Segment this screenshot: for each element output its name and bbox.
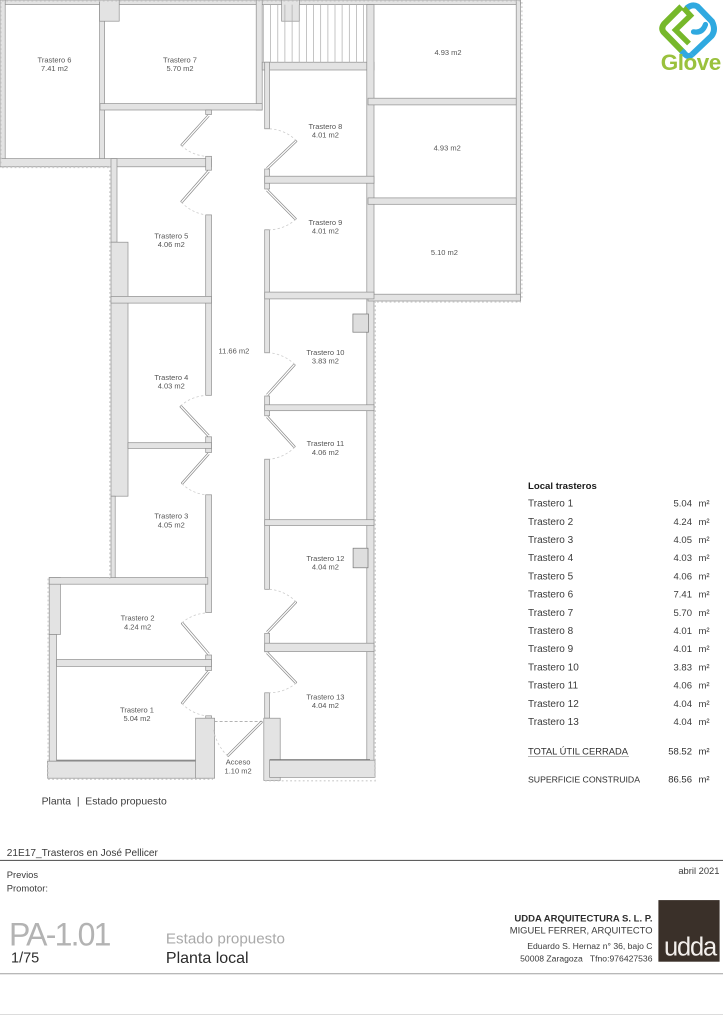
svg-text:Trastero 8: Trastero 8 [528, 626, 574, 637]
svg-text:m²: m² [699, 662, 710, 673]
svg-text:Local trasteros: Local trasteros [528, 481, 597, 492]
svg-text:Trastero 7: Trastero 7 [163, 55, 197, 64]
svg-text:TOTAL ÚTIL CERRADA: TOTAL ÚTIL CERRADA [528, 746, 629, 757]
svg-text:m²: m² [699, 626, 710, 637]
svg-text:Trastero 8: Trastero 8 [308, 122, 342, 131]
svg-text:m²: m² [699, 499, 710, 510]
svg-text:Trastero 4: Trastero 4 [528, 553, 574, 564]
svg-text:MIGUEL FERRER, ARQUITECTO: MIGUEL FERRER, ARQUITECTO [510, 925, 653, 936]
svg-text:Promotor:: Promotor: [7, 883, 48, 894]
svg-text:Trastero 1: Trastero 1 [528, 499, 574, 510]
svg-text:m²: m² [699, 747, 710, 758]
svg-text:5.10 m2: 5.10 m2 [431, 248, 458, 257]
svg-text:11.66 m2: 11.66 m2 [219, 346, 250, 355]
svg-text:5.04: 5.04 [674, 499, 693, 510]
svg-text:Trastero 6: Trastero 6 [38, 55, 72, 64]
svg-text:Previos: Previos [7, 869, 39, 880]
svg-text:Eduardo S. Hernaz n° 36, bajo: Eduardo S. Hernaz n° 36, bajo C [527, 941, 652, 951]
svg-text:Trastero 9: Trastero 9 [308, 218, 342, 227]
svg-text:3.83 m2: 3.83 m2 [312, 357, 339, 366]
svg-text:7.41 m2: 7.41 m2 [41, 64, 68, 73]
svg-text:Trastero 2: Trastero 2 [528, 517, 574, 528]
svg-text:1.10 m2: 1.10 m2 [225, 766, 252, 775]
svg-text:Trastero 3: Trastero 3 [154, 512, 188, 521]
svg-text:m²: m² [699, 535, 710, 546]
svg-text:86.56: 86.56 [668, 775, 692, 786]
svg-text:Trastero 7: Trastero 7 [528, 608, 574, 619]
svg-text:4.01: 4.01 [674, 626, 693, 637]
svg-text:Trastero 13: Trastero 13 [528, 717, 579, 728]
svg-text:Planta local: Planta local [166, 950, 249, 967]
svg-text:Acceso: Acceso [226, 758, 251, 767]
svg-text:abril 2021: abril 2021 [678, 865, 719, 876]
svg-text:4.24 m2: 4.24 m2 [124, 622, 151, 631]
svg-text:Trastero 5: Trastero 5 [154, 231, 188, 240]
svg-text:5.70 m2: 5.70 m2 [166, 64, 193, 73]
svg-text:Trastero 2: Trastero 2 [121, 614, 155, 623]
svg-text:Planta | Estado propuesto: Planta | Estado propuesto [42, 797, 167, 808]
svg-text:Trastero 13: Trastero 13 [306, 692, 344, 701]
svg-text:Trastero 9: Trastero 9 [528, 644, 574, 655]
svg-text:Trastero 12: Trastero 12 [306, 554, 344, 563]
svg-text:Estado propuesto: Estado propuesto [166, 931, 285, 948]
svg-text:m²: m² [699, 699, 710, 710]
svg-text:4.06 m2: 4.06 m2 [312, 448, 339, 457]
svg-text:m²: m² [699, 571, 710, 582]
svg-text:4.04 m2: 4.04 m2 [312, 701, 339, 710]
svg-text:4.06 m2: 4.06 m2 [158, 240, 185, 249]
svg-text:1/75: 1/75 [11, 951, 39, 967]
svg-text:m²: m² [699, 644, 710, 655]
svg-text:Trastero 3: Trastero 3 [528, 535, 574, 546]
svg-text:Trastero 5: Trastero 5 [528, 571, 574, 582]
svg-text:Trastero 10: Trastero 10 [306, 348, 344, 357]
svg-text:Trastero 11: Trastero 11 [307, 439, 345, 448]
svg-text:4.24: 4.24 [674, 517, 693, 528]
svg-text:PA-1.01: PA-1.01 [9, 917, 111, 953]
svg-text:50008 Zaragoza Tfno:97642753: 50008 Zaragoza Tfno:976427536 [520, 953, 653, 963]
svg-text:SUPERFICIE CONSTRUIDA: SUPERFICIE CONSTRUIDA [528, 775, 640, 785]
svg-text:m²: m² [699, 681, 710, 692]
svg-text:m²: m² [699, 590, 710, 601]
svg-text:Trastero 4: Trastero 4 [154, 373, 188, 382]
svg-text:5.04 m2: 5.04 m2 [123, 714, 150, 723]
svg-text:m²: m² [699, 553, 710, 564]
svg-text:21E17_Trasteros en José Pellic: 21E17_Trasteros en José Pellicer [7, 848, 159, 859]
svg-text:Trastero 12: Trastero 12 [528, 699, 579, 710]
svg-text:4.05: 4.05 [674, 535, 693, 546]
svg-text:4.93 m2: 4.93 m2 [434, 48, 461, 57]
svg-text:4.93 m2: 4.93 m2 [434, 143, 461, 152]
svg-text:4.03: 4.03 [674, 553, 693, 564]
svg-text:Trastero 1: Trastero 1 [120, 705, 154, 714]
svg-text:4.06: 4.06 [674, 571, 693, 582]
svg-text:4.04: 4.04 [674, 717, 693, 728]
svg-text:m²: m² [699, 517, 710, 528]
svg-text:m²: m² [699, 775, 710, 786]
svg-text:Trastero 10: Trastero 10 [528, 662, 579, 673]
svg-text:m²: m² [699, 717, 710, 728]
svg-text:5.70: 5.70 [674, 608, 693, 619]
svg-text:58.52: 58.52 [668, 747, 692, 758]
svg-text:UDDA ARQUITECTURA S. L. P.: UDDA ARQUITECTURA S. L. P. [514, 913, 652, 924]
svg-text:4.04 m2: 4.04 m2 [312, 563, 339, 572]
svg-text:4.01 m2: 4.01 m2 [312, 227, 339, 236]
svg-text:udda: udda [664, 933, 718, 961]
svg-text:7.41: 7.41 [674, 590, 693, 601]
svg-text:3.83: 3.83 [674, 662, 693, 673]
svg-text:m²: m² [699, 608, 710, 619]
svg-text:Trastero 6: Trastero 6 [528, 590, 574, 601]
svg-text:4.04: 4.04 [674, 699, 693, 710]
svg-text:4.05 m2: 4.05 m2 [158, 520, 185, 529]
svg-text:4.06: 4.06 [674, 681, 693, 692]
svg-text:Glove: Glove [661, 50, 721, 75]
svg-text:4.01 m2: 4.01 m2 [312, 131, 339, 140]
svg-text:Trastero 11: Trastero 11 [528, 681, 578, 692]
svg-text:4.03 m2: 4.03 m2 [158, 382, 185, 391]
svg-text:4.01: 4.01 [674, 644, 693, 655]
